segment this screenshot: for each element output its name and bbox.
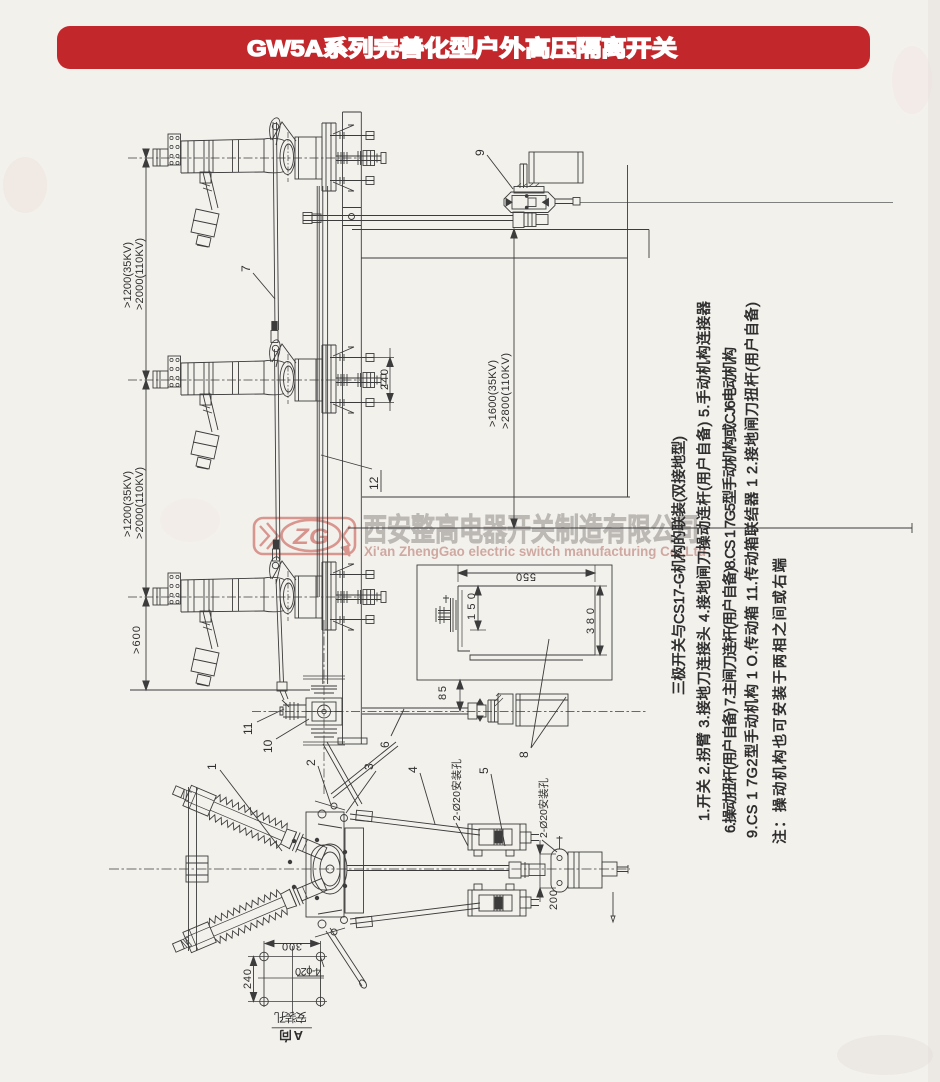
svg-text:240: 240 bbox=[242, 969, 254, 989]
svg-text:3: 3 bbox=[362, 763, 376, 770]
svg-text:>2000(110KV): >2000(110KV) bbox=[134, 467, 146, 539]
svg-text:12: 12 bbox=[367, 476, 381, 490]
svg-text:2-Ø20安装孔: 2-Ø20安装孔 bbox=[537, 778, 550, 839]
svg-text:5: 5 bbox=[477, 767, 491, 774]
svg-text:240: 240 bbox=[379, 369, 391, 390]
svg-text:2: 2 bbox=[304, 759, 318, 766]
svg-text:GW5A系列完善化型户外高压隔离开关: GW5A系列完善化型户外高压隔离开关 bbox=[247, 36, 677, 61]
svg-text:A向: A向 bbox=[279, 1028, 303, 1043]
svg-text:>1600(35KV): >1600(35KV) bbox=[487, 360, 499, 427]
svg-text:10: 10 bbox=[261, 739, 275, 753]
svg-text:85: 85 bbox=[437, 686, 449, 700]
svg-text:11: 11 bbox=[241, 722, 255, 735]
svg-text:8: 8 bbox=[517, 751, 531, 758]
svg-text:4-ϕ20: 4-ϕ20 bbox=[295, 965, 321, 977]
svg-text:>2800(110KV): >2800(110KV) bbox=[500, 353, 512, 429]
svg-text:2-Ø20安装孔: 2-Ø20安装孔 bbox=[450, 759, 463, 822]
svg-text:安装孔: 安装孔 bbox=[274, 1010, 307, 1025]
svg-text:9.CS 1 7G2型手动机构 1 O.传动箱 11.传动箱: 9.CS 1 7G2型手动机构 1 O.传动箱 11.传动箱联结器 1 2.接地… bbox=[744, 302, 761, 838]
svg-text:380: 380 bbox=[585, 608, 597, 634]
svg-text:>1200(35KV): >1200(35KV) bbox=[122, 242, 134, 308]
svg-text:注：操动机构也可安装于两相之间或右端: 注：操动机构也可安装于两相之间或右端 bbox=[772, 558, 789, 844]
svg-text:4: 4 bbox=[406, 766, 420, 773]
svg-text:Xi'an ZhengGao electric switch: Xi'an ZhengGao electric switch manufactu… bbox=[364, 543, 706, 559]
svg-text:ZG: ZG bbox=[292, 524, 329, 549]
svg-text:7: 7 bbox=[239, 265, 253, 272]
svg-text:>600: >600 bbox=[131, 626, 143, 654]
svg-text:6.操动扭杆(用户自备) 7.主闸刀连杆(用户自备)8.CS: 6.操动扭杆(用户自备) 7.主闸刀连杆(用户自备)8.CS 1 7G5型手动机… bbox=[722, 347, 739, 833]
svg-text:1: 1 bbox=[205, 763, 219, 770]
svg-text:200: 200 bbox=[548, 890, 560, 910]
svg-text:550: 550 bbox=[516, 571, 536, 583]
svg-text:>2000(110KV): >2000(110KV) bbox=[134, 238, 146, 310]
svg-text:9: 9 bbox=[473, 149, 487, 156]
svg-text:1.开关 2.拐臂 3.接地刀连接头 4.接地闸刀操动连杆(: 1.开关 2.拐臂 3.接地刀连接头 4.接地闸刀操动连杆(用户自备) 5.手动… bbox=[696, 301, 713, 822]
svg-text:150: 150 bbox=[466, 593, 478, 620]
svg-text:>1200(35KV): >1200(35KV) bbox=[122, 471, 134, 537]
svg-text:300: 300 bbox=[282, 940, 302, 952]
svg-text:三极开关与CS17-G机构的联装(双接地型): 三极开关与CS17-G机构的联装(双接地型) bbox=[671, 436, 688, 695]
